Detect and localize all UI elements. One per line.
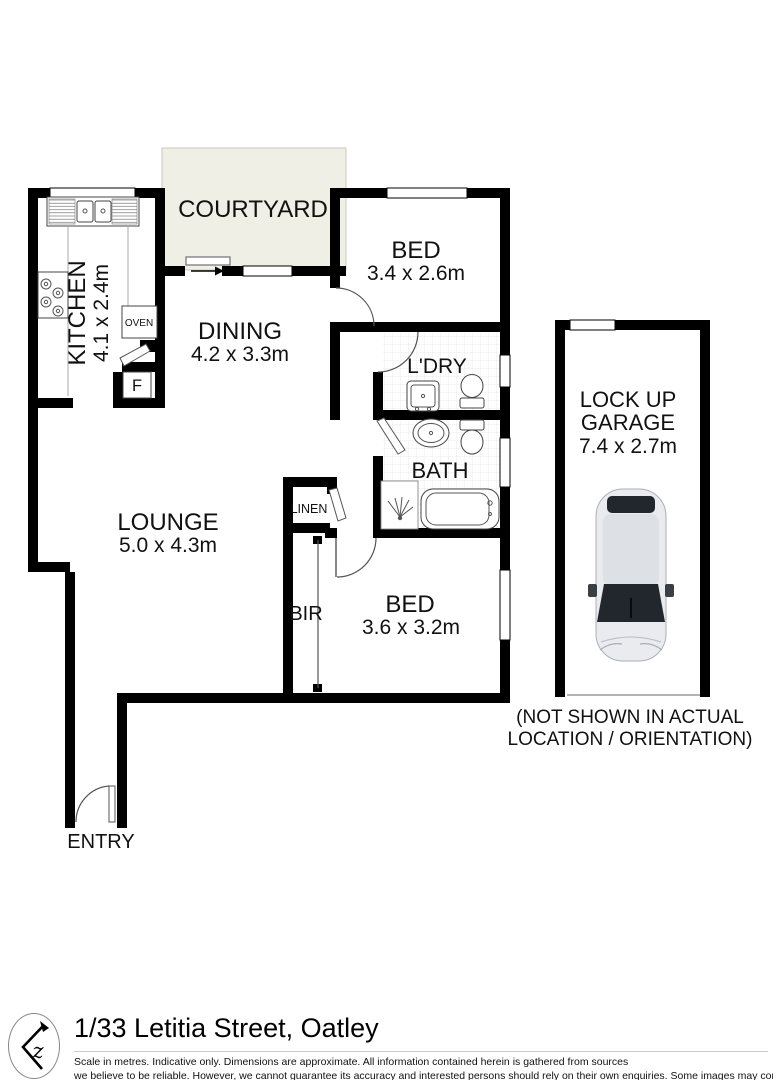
wall-segment: [330, 322, 340, 420]
north-arrow-icon: z: [9, 1014, 59, 1078]
window: [243, 266, 292, 276]
wall-segment: [113, 372, 123, 398]
linen-door-leaf: [329, 488, 346, 521]
bed2-label: BED: [385, 591, 434, 618]
wall-segment: [113, 398, 165, 408]
wall-segment: [165, 266, 185, 276]
garage-dims: 7.4 x 2.7m: [579, 435, 677, 458]
bed1-door-arc: [336, 288, 374, 326]
bed1-label: BED: [391, 237, 440, 264]
disclaimer: Scale in metres. Indicative only. Dimens…: [74, 1056, 773, 1080]
wall-segment: [700, 320, 710, 697]
garage-note-line2: LOCATION / ORIENTATION): [508, 729, 753, 750]
kitchen-label: KITCHEN: [64, 260, 91, 365]
garage-label-line2: GARAGE: [581, 410, 675, 435]
wall-segment: [500, 387, 510, 438]
dining-dims: 4.2 x 3.3m: [191, 343, 289, 366]
car-illustration: [588, 489, 674, 661]
shower: [381, 481, 418, 529]
bed2-door: [336, 538, 376, 577]
wall-segment: [330, 198, 340, 288]
wall-segment: [500, 538, 510, 570]
linen-label: LINEN: [291, 502, 328, 516]
laundry-label: L'DRY: [407, 355, 467, 378]
kitchen-dims: 4.1 x 2.4m: [90, 264, 113, 362]
window: [387, 188, 467, 198]
fridge-label: F: [132, 377, 142, 395]
floorplan-page: COURTYARD KITCHEN 4.1 x 2.4m DINING 4.2 …: [0, 0, 773, 1080]
agency-logo: z: [8, 1013, 60, 1079]
wall-segment: [65, 572, 75, 828]
property-address: 1/33 Letitia Street, Oatley: [74, 1013, 379, 1044]
wall-segment: [28, 398, 38, 572]
bath-basin: [413, 419, 449, 447]
wall-segment: [330, 322, 510, 332]
bathtub: [421, 489, 499, 529]
garage-note-line1: (NOT SHOWN IN ACTUAL: [516, 707, 744, 728]
wall-segment: [28, 188, 38, 408]
bath-toilet: [460, 420, 484, 454]
wall-segment: [117, 693, 127, 828]
wall-segment: [500, 332, 510, 355]
wall-segment: [28, 562, 70, 572]
bed1-dims: 3.4 x 2.6m: [367, 262, 465, 285]
window: [500, 438, 510, 487]
bed2-dims: 3.6 x 3.2m: [362, 616, 460, 639]
lounge-dims: 5.0 x 4.3m: [119, 534, 217, 557]
laundry-toilet: [460, 375, 484, 409]
floorplan-drawing: COURTYARD KITCHEN 4.1 x 2.4m DINING 4.2 …: [0, 0, 773, 1000]
window: [500, 355, 510, 387]
laundry-tub: [407, 381, 439, 411]
entry-door: [76, 786, 115, 822]
disclaimer-line2: we believe to be reliable. However, we c…: [74, 1070, 773, 1080]
wall-segment: [222, 266, 243, 276]
bath-label: BATH: [411, 458, 468, 483]
garage-label-line1: LOCK UP: [580, 387, 677, 412]
wall-segment: [117, 693, 510, 703]
window: [500, 570, 510, 640]
kitchen-sink: [47, 197, 139, 226]
wall-segment: [500, 188, 510, 332]
footer-divider: [74, 1051, 768, 1052]
footer: z 1/33 Letitia Street, Oatley Scale in m…: [0, 1005, 773, 1080]
entry-label: ENTRY: [67, 831, 134, 853]
oven-label: OVEN: [125, 318, 153, 329]
disclaimer-line1: Scale in metres. Indicative only. Dimens…: [74, 1056, 773, 1070]
wall-segment: [555, 320, 565, 697]
wall-segment: [155, 188, 165, 408]
window: [570, 320, 615, 330]
courtyard-label: COURTYARD: [178, 196, 328, 223]
bir-label: BIR: [289, 603, 322, 625]
lounge-label: LOUNGE: [117, 509, 218, 536]
logo-letter: z: [31, 1039, 44, 1063]
wall-segment: [373, 410, 500, 420]
dining-label: DINING: [198, 318, 282, 345]
